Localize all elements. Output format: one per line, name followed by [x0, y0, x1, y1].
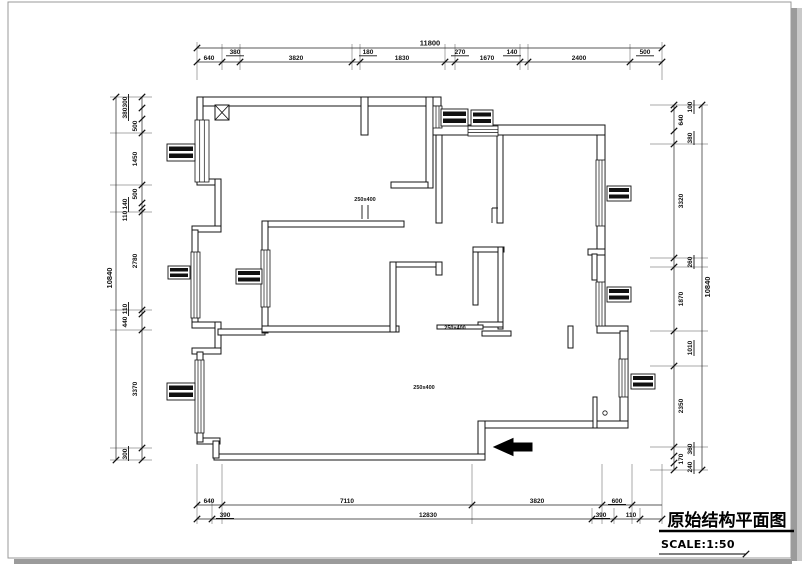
dim-segment: 390	[220, 512, 231, 519]
dim-segment: 440	[122, 316, 129, 327]
dim-segment: 390	[596, 512, 607, 519]
dim-segment: 140	[122, 198, 129, 209]
window-symbol	[195, 360, 204, 433]
dim-total-top: 11800	[420, 39, 440, 48]
dim-segment: 110	[122, 210, 129, 221]
beam-label: 250x400	[354, 197, 375, 203]
drawing-title: 原始结构平面图	[668, 510, 787, 531]
dim-segment: 1450	[132, 151, 139, 166]
column-marker	[215, 105, 229, 120]
dim-segment: 170	[678, 453, 685, 464]
dim-segment: 2400	[572, 55, 587, 62]
dim-segment: 3820	[530, 498, 545, 505]
dim-segment: 600	[612, 498, 623, 505]
window-symbol	[191, 252, 200, 318]
dim-segment: 1670	[480, 55, 495, 62]
dim-segment: 360	[687, 443, 694, 454]
dim-segment: 140	[507, 49, 518, 56]
label-tag	[236, 269, 262, 284]
dim-segment: 1870	[678, 291, 685, 306]
dim-segment: 500	[132, 188, 139, 199]
window-symbol	[468, 126, 498, 136]
label-tag	[168, 266, 190, 279]
window-symbol	[619, 359, 628, 397]
window-symbol	[596, 282, 605, 326]
dim-segment: 110	[626, 512, 637, 519]
sheet-border	[8, 2, 791, 558]
dim-segment: 1010	[687, 340, 694, 355]
dim-segment: 1830	[395, 55, 410, 62]
dim-segment: 300	[122, 448, 129, 459]
dim-segment: 180	[363, 49, 374, 56]
scale-label: SCALE:1:50	[661, 538, 735, 551]
dim-total-left: 10840	[105, 268, 114, 289]
sheet-shadow-right	[791, 8, 797, 561]
dim-segment: 380	[230, 49, 241, 56]
dim-segment: 7110	[340, 498, 354, 505]
page-frame	[8, 2, 802, 564]
dim-segment: 260	[687, 256, 694, 267]
dim-segment: 3320	[678, 193, 685, 208]
dim-total-right: 10840	[703, 277, 712, 298]
dim-segment: 380	[687, 132, 694, 143]
dim-segment: 100	[687, 101, 694, 112]
sheet-shadow-right-outer	[797, 8, 802, 561]
dim-segment: 380	[122, 107, 129, 118]
drawing-canvas: 250x400 250x400 250x400 11800 640 380 38…	[0, 0, 802, 569]
dim-segment: 500	[640, 49, 651, 56]
beam-label: 250x400	[413, 385, 434, 391]
sheet-shadow-bottom	[14, 559, 792, 564]
dim-segment: 640	[678, 114, 685, 125]
dim-segment: 2780	[132, 253, 139, 268]
dim-segment: 300	[122, 96, 129, 107]
label-tag	[631, 374, 655, 389]
beam-label: 250x400	[444, 326, 465, 332]
label-tag	[167, 383, 195, 400]
label-tag	[167, 144, 195, 161]
dim-segment: 2350	[678, 398, 685, 413]
dim-segment: 110	[122, 303, 129, 314]
dim-segment: 270	[455, 49, 466, 56]
window-symbol	[596, 160, 605, 226]
label-tag	[471, 110, 493, 126]
dim-segment: 3820	[289, 55, 304, 62]
dim-segment: 12830	[419, 512, 437, 519]
label-tag	[607, 287, 631, 302]
label-tag	[607, 186, 631, 201]
dim-segment: 500	[132, 120, 139, 131]
dim-segment: 3370	[132, 381, 139, 396]
dim-segment: 640	[204, 55, 215, 62]
window-symbol	[195, 120, 209, 182]
dim-segment: 240	[687, 461, 694, 472]
dim-segment: 640	[204, 498, 215, 505]
label-tag	[441, 109, 468, 126]
